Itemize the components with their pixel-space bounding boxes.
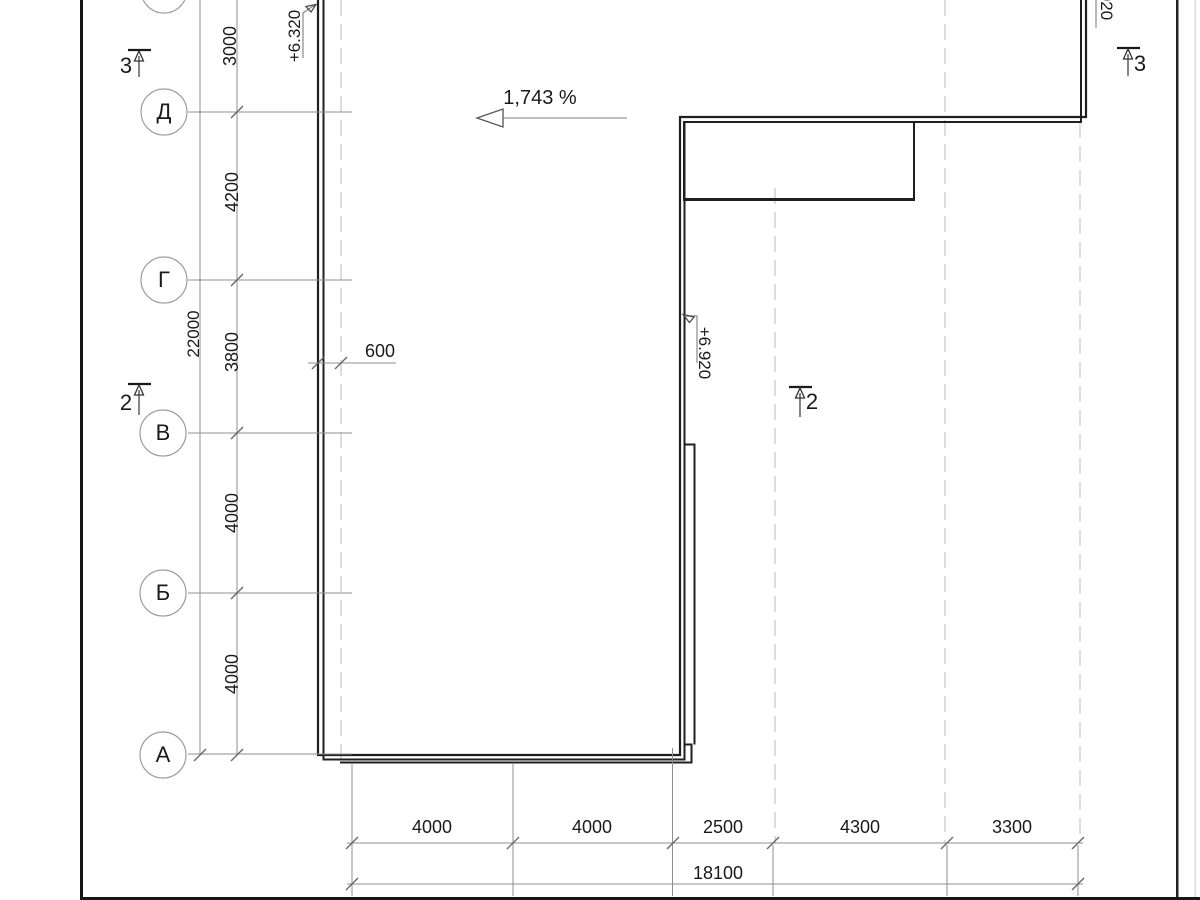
dim-label: 4000 xyxy=(222,493,242,533)
frame-right-border xyxy=(1176,0,1179,900)
section-mark-2-left: 2 xyxy=(120,384,151,415)
dim-label-offset: 600 xyxy=(365,341,395,361)
grid-row-label: В xyxy=(156,420,171,445)
dim-label: 4000 xyxy=(222,654,242,694)
elevation-top-right: +6.920 xyxy=(1096,0,1116,28)
grid-row-label: Б xyxy=(156,580,170,605)
elevation-label: +6.920 xyxy=(1097,0,1116,20)
elevation-top-left: +6.320 xyxy=(285,5,316,63)
dim-label: 3300 xyxy=(992,817,1032,837)
dim-label: 2500 xyxy=(703,817,743,837)
grid-row-label: Д xyxy=(157,99,172,124)
sheet-edge-line xyxy=(1195,0,1197,900)
dim-label: 3000 xyxy=(220,26,240,66)
dim-label: 4000 xyxy=(412,817,452,837)
section-label: 2 xyxy=(120,390,132,415)
dim-label: 4300 xyxy=(840,817,880,837)
dim-total-label: 18100 xyxy=(693,863,743,883)
section-label: 3 xyxy=(120,53,132,78)
dashed-axis-lines xyxy=(341,0,1080,843)
elevation-leader-line xyxy=(303,6,314,59)
grid-row-label: А xyxy=(156,742,171,767)
sheet-frame xyxy=(80,0,1200,900)
section-mark-3-left: 3 xyxy=(120,50,151,78)
section-label: 3 xyxy=(1134,51,1146,76)
grid-bubbles: Д Г В Б А xyxy=(140,0,187,778)
grid-bubble-top-cut xyxy=(141,0,187,13)
elevation-marks: +6.320 +6.920 +6.920 xyxy=(285,0,1116,379)
dim-total-label: 22000 xyxy=(184,310,203,357)
roof-contour-offset xyxy=(324,0,1082,760)
grid-row-label: Г xyxy=(158,267,170,292)
elevation-inner: +6.920 xyxy=(683,315,714,380)
slope-annotation: 1,743 % xyxy=(477,87,627,127)
section-label: 2 xyxy=(806,389,818,414)
building-outline xyxy=(318,0,1086,763)
elevation-label: +6.320 xyxy=(285,10,304,62)
dim-label: 4000 xyxy=(572,817,612,837)
dim-label: 4200 xyxy=(222,172,242,212)
section-mark-3-right: 3 xyxy=(1117,48,1146,76)
section-mark-2-inner: 2 xyxy=(789,387,818,417)
dim-label: 3800 xyxy=(222,332,242,372)
slope-arrow-icon xyxy=(477,109,503,127)
dimension-ticks xyxy=(194,106,1084,890)
horizontal-dimension-labels: 4000 4000 2500 4300 3300 18100 600 xyxy=(365,341,1032,883)
slope-label: 1,743 % xyxy=(503,87,577,109)
vertical-dimension-labels: 3000 4200 3800 4000 4000 22000 xyxy=(184,26,242,694)
elevation-label: +6.920 xyxy=(695,327,714,379)
section-marks: 3 2 2 3 xyxy=(120,48,1146,417)
roof-plan-drawing: Д Г В Б А 3000 4200 3800 4000 4000 22000… xyxy=(0,0,1200,900)
frame-left-border xyxy=(80,0,83,900)
wall-strip-edge xyxy=(684,445,695,745)
roof-step-rectangle xyxy=(684,122,914,199)
